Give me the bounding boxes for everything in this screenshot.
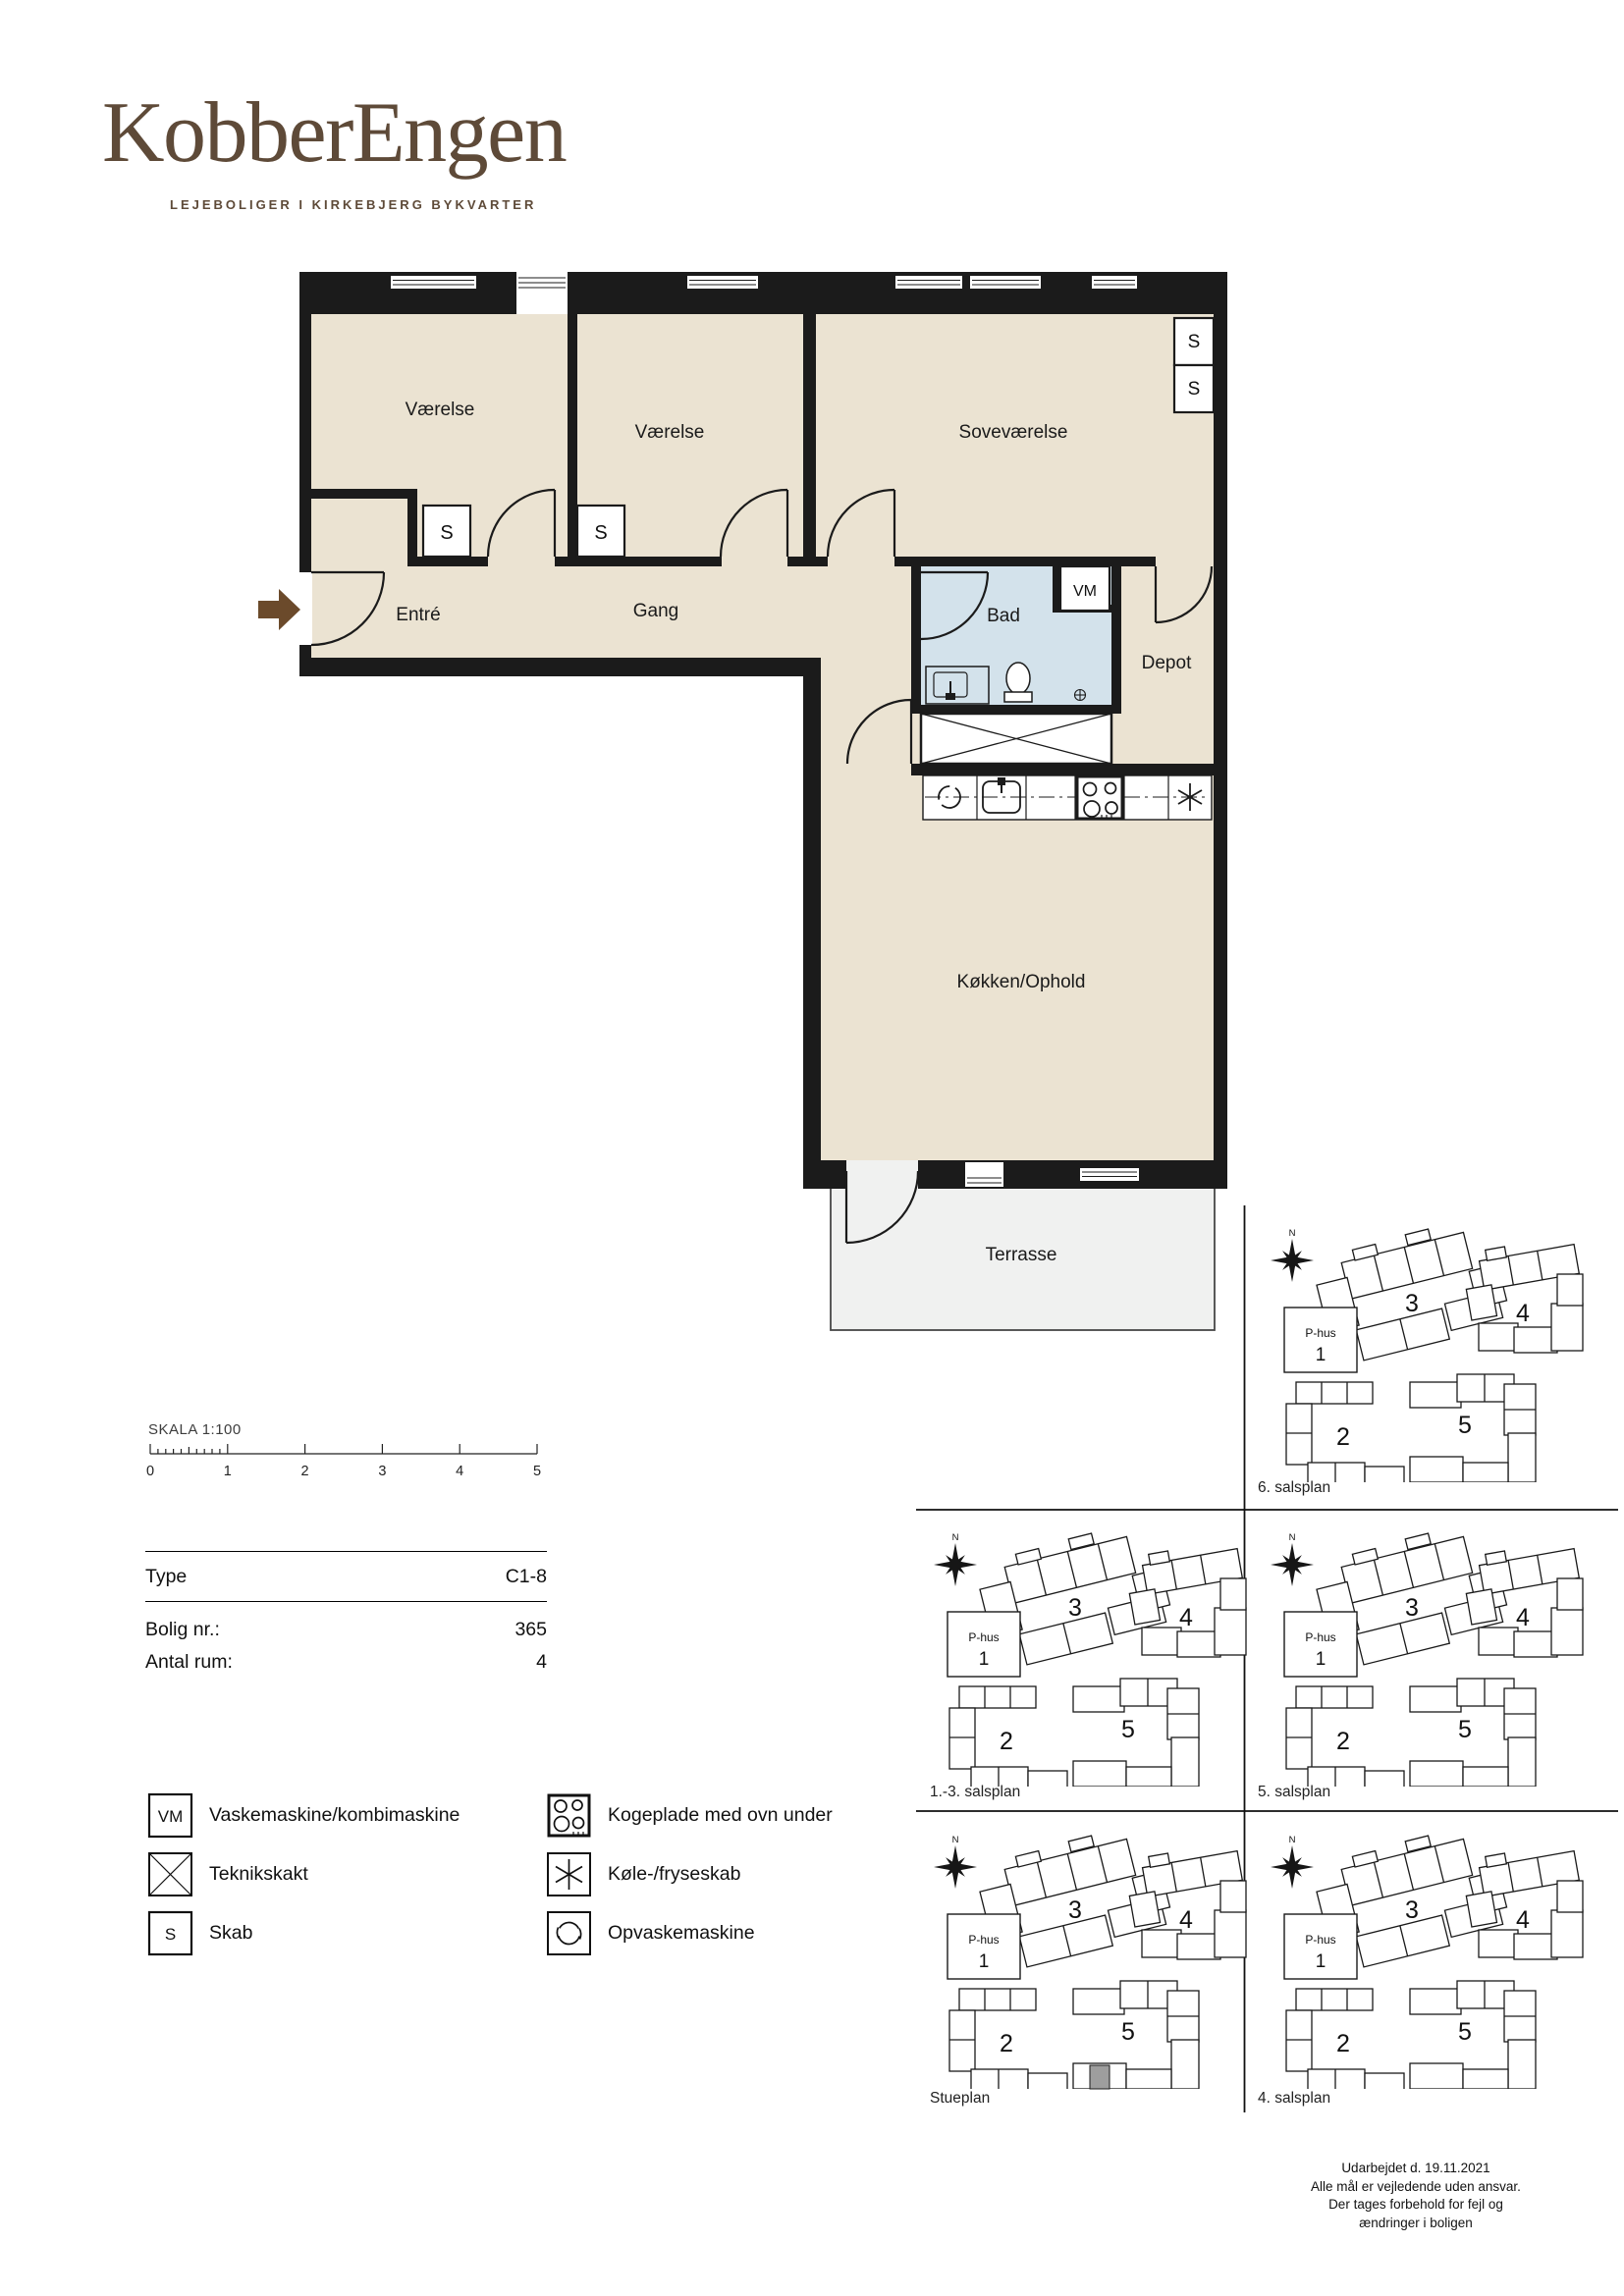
siteplan-label-4: 4. salsplan xyxy=(1258,2090,1330,2107)
info-row-bolig: Bolig nr.: 365 xyxy=(145,1617,547,1643)
svg-text:0: 0 xyxy=(146,1464,154,1479)
legend-item-opvaskemaskine: Opvaskemaskine xyxy=(546,1910,833,1956)
room-label-vaerelse2: Værelse xyxy=(635,422,705,443)
info-row-type: Type C1-8 xyxy=(145,1551,547,1602)
room-label-sovevaerelse: Soveværelse xyxy=(959,422,1068,443)
legend-item-koele-fryseskab: Køle-/fryseskab xyxy=(546,1851,833,1897)
legend-label: Vaskemaskine/kombimaskine xyxy=(209,1804,460,1827)
washing-machine-label: VM xyxy=(1073,583,1097,600)
info-value: 4 xyxy=(536,1651,547,1674)
siteplan-4-salsplan xyxy=(1271,1822,1584,2091)
scale-label: SKALA 1:100 xyxy=(148,1421,242,1438)
room-label-terrasse: Terrasse xyxy=(986,1245,1057,1265)
vm-icon: VM xyxy=(147,1792,193,1839)
unit-info-table: Type C1-8 Bolig nr.: 365 Antal rum: 4 xyxy=(145,1551,547,1676)
svg-text:VM: VM xyxy=(158,1807,184,1826)
legend-label: Skab xyxy=(209,1922,252,1945)
closet-label: S xyxy=(1188,332,1201,352)
room-label-depot: Depot xyxy=(1142,653,1192,673)
toilet-icon xyxy=(1006,663,1030,694)
footer-line: Udarbejdet d. 19.11.2021 xyxy=(1208,2160,1624,2178)
closet-label: S xyxy=(1188,379,1201,400)
info-value: 365 xyxy=(514,1619,547,1641)
room-label-entre: Entré xyxy=(396,605,440,625)
info-label: Type xyxy=(145,1566,187,1588)
legend-item-kogeplade: Kogeplade med ovn under xyxy=(546,1792,833,1839)
siteplan-label-stue: Stueplan xyxy=(930,2090,990,2107)
svg-text:3: 3 xyxy=(378,1464,386,1479)
kitchen-counter xyxy=(923,775,1212,820)
closet-label: S xyxy=(594,522,607,544)
legend-label: Opvaskemaskine xyxy=(608,1922,755,1945)
terrace-door-opening xyxy=(846,1160,918,1189)
scale-bar xyxy=(150,1444,537,1454)
legend-item-skab: S Skab xyxy=(147,1910,460,1956)
room-label-gang: Gang xyxy=(633,601,678,621)
page: KobberEngen LEJEBOLIGER I KIRKEBJERG BYK… xyxy=(0,0,1624,2296)
siteplan-6-salsplan xyxy=(1271,1215,1584,1484)
legend-label: Kogeplade med ovn under xyxy=(608,1804,833,1827)
skab-icon: S xyxy=(147,1910,193,1956)
siteplan-label-6: 6. salsplan xyxy=(1258,1479,1330,1496)
legend-item-vm: VM Vaskemaskine/kombimaskine xyxy=(147,1792,460,1839)
scale-bar-ticks: 0 1 2 3 4 5 xyxy=(146,1464,541,1479)
svg-text:5: 5 xyxy=(533,1464,541,1479)
legend-label: Køle-/fryseskab xyxy=(608,1863,740,1886)
opvaskemaskine-icon xyxy=(546,1910,592,1956)
legend-column-2: Kogeplade med ovn under Køle-/fryseskab … xyxy=(546,1792,833,1969)
info-label: Antal rum: xyxy=(145,1651,233,1674)
footer-line: Der tages forbehold for fejl og xyxy=(1208,2196,1624,2215)
floor-drain-icon xyxy=(1075,690,1086,701)
siteplan-1-3-salsplan xyxy=(934,1520,1247,1789)
teknikskakt-icon xyxy=(147,1851,193,1897)
svg-text:S: S xyxy=(165,1925,176,1944)
info-label: Bolig nr.: xyxy=(145,1619,220,1641)
info-value: C1-8 xyxy=(506,1566,547,1588)
siteplan-stueplan xyxy=(934,1822,1247,2091)
room-label-vaerelse1: Værelse xyxy=(406,400,475,420)
kogeplade-icon xyxy=(546,1792,592,1839)
closet-label: S xyxy=(440,522,453,544)
koele-fryseskab-icon xyxy=(546,1851,592,1897)
footer-line: Alle mål er vejledende uden ansvar. xyxy=(1208,2178,1624,2197)
info-row-rum: Antal rum: 4 xyxy=(145,1649,547,1676)
legend-item-teknikskakt: Teknikskakt xyxy=(147,1851,460,1897)
svg-text:2: 2 xyxy=(301,1464,309,1479)
entry-door-opening xyxy=(298,572,312,645)
cooktop-icon xyxy=(1077,776,1122,819)
entry-arrow-icon xyxy=(258,589,300,630)
room-label-koekken: Køkken/Ophold xyxy=(957,972,1086,992)
technical-shaft xyxy=(921,714,1111,764)
siteplan-label-1-3: 1.-3. salsplan xyxy=(930,1784,1020,1800)
room-label-bad: Bad xyxy=(987,606,1020,626)
footer-line: ændringer i boligen xyxy=(1208,2215,1624,2233)
svg-text:4: 4 xyxy=(456,1464,463,1479)
legend-column-1: VM Vaskemaskine/kombimaskine Teknikskakt… xyxy=(147,1792,460,1969)
apartment-location-highlight xyxy=(1090,2065,1110,2089)
legend-label: Teknikskakt xyxy=(209,1863,308,1886)
siteplan-5-salsplan xyxy=(1271,1520,1584,1789)
siteplan-label-5: 5. salsplan xyxy=(1258,1784,1330,1800)
svg-text:1: 1 xyxy=(224,1464,232,1479)
footer-disclaimer: Udarbejdet d. 19.11.2021 Alle mål er vej… xyxy=(1208,2160,1624,2232)
